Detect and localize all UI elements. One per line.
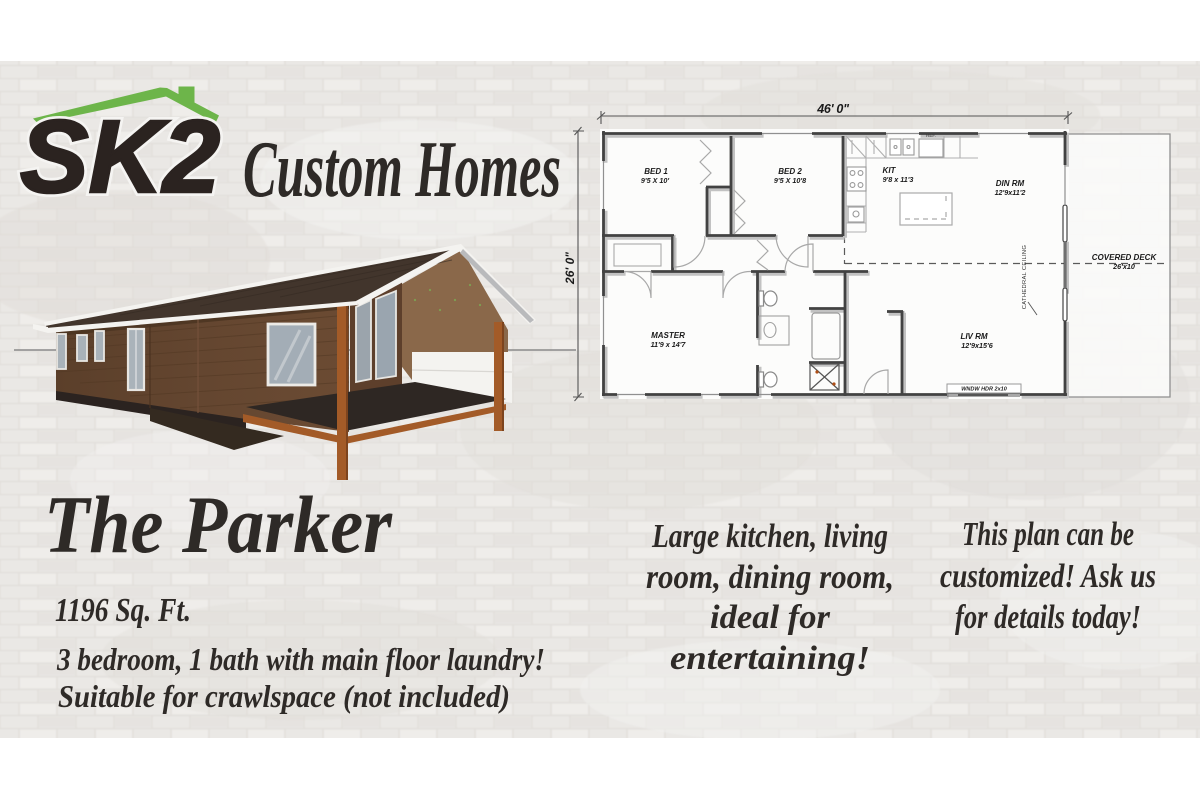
svg-text:BED 2: BED 2 [778,167,802,176]
svg-text:room, dining room,: room, dining room, [646,559,894,596]
svg-text:Suitable for crawlspace (not i: Suitable for crawlspace (not included) [58,678,510,714]
svg-text:KIT: KIT [883,166,897,175]
svg-text:26' 0": 26' 0" [563,252,577,285]
svg-text:3 bedroom, 1 bath with main fl: 3 bedroom, 1 bath with main floor laundr… [56,641,545,677]
svg-text:Large kitchen, living: Large kitchen, living [651,518,888,555]
svg-text:ideal for: ideal for [710,599,831,636]
svg-text:26'x10: 26'x10 [1112,262,1135,271]
svg-text:MASTER: MASTER [651,331,685,340]
svg-text:The Parker: The Parker [44,479,393,570]
svg-text:WNDW HDR 2x10: WNDW HDR 2x10 [961,387,1007,393]
svg-text:REF.: REF. [926,133,936,138]
svg-text:DIN RM: DIN RM [996,179,1025,188]
svg-text:entertaining!: entertaining! [670,640,870,677]
svg-text:9'5 X 10': 9'5 X 10' [641,176,669,185]
svg-text:SK2: SK2 [20,99,220,214]
svg-text:9'8 x 11'3: 9'8 x 11'3 [883,175,914,184]
svg-text:customized! Ask us: customized! Ask us [940,558,1156,595]
svg-text:for details today!: for details today! [955,599,1141,636]
svg-text:CATHEDRAL CEILING: CATHEDRAL CEILING [1022,245,1028,310]
svg-text:11'9 x 14'7: 11'9 x 14'7 [651,340,687,349]
svg-text:12'9x15'6: 12'9x15'6 [961,341,993,350]
svg-text:COVERED DECK: COVERED DECK [1092,253,1158,262]
svg-text:1196 Sq. Ft.: 1196 Sq. Ft. [55,592,191,629]
svg-text:46' 0": 46' 0" [816,102,850,116]
svg-text:BED 1: BED 1 [644,167,668,176]
svg-text:LIV RM: LIV RM [960,332,987,341]
svg-text:12'9x11'2: 12'9x11'2 [995,188,1026,197]
svg-text:This plan can be: This plan can be [962,516,1134,553]
svg-text:9'5 X 10'8: 9'5 X 10'8 [774,176,806,185]
svg-text:Custom Homes: Custom Homes [243,126,561,214]
